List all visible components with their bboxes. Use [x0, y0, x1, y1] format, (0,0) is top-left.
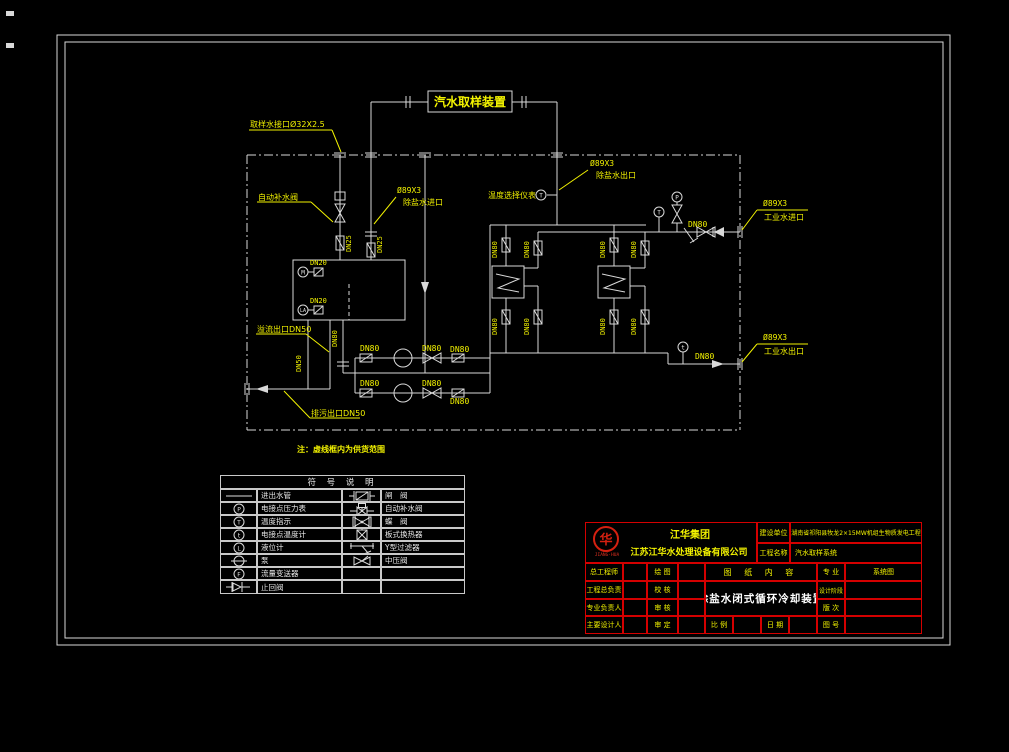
level-gauge-icon: L — [220, 541, 257, 554]
pump-icon — [392, 349, 414, 367]
cell-empty — [789, 616, 817, 634]
drawing-title: 除盐水闭式循环冷却装置 — [705, 581, 817, 616]
cell-empty — [678, 581, 705, 599]
legend-label: 闸 阀 — [381, 489, 465, 502]
pipe-size: DN80 — [450, 397, 469, 406]
demin-outlet-label: 除盐水出口 — [596, 170, 636, 180]
legend-label: 板式换热器 — [381, 528, 465, 541]
demin-inlet-pipe — [421, 155, 429, 373]
logo-text: JIANG·HUA — [590, 553, 624, 558]
makeup-tank: DN25 DN25 M DN20 LA DN20 — [293, 155, 405, 320]
pipe-size: DN80 — [331, 330, 339, 347]
temp-indicator-icon: T — [220, 515, 257, 528]
cell-empty — [845, 616, 922, 634]
instrument-letter: t — [681, 345, 685, 352]
project-leader-label: 工程总负责 — [585, 581, 623, 599]
plate-heat-exchanger-2: DN80 DN80 DN80 DN80 — [598, 225, 649, 353]
circulating-pumps: DN80 DN80 DN80 DN80 DN80 DN80 DN80 — [331, 320, 490, 406]
pipe-size: DN20 — [310, 259, 327, 267]
legend-label: 中压阀 — [381, 554, 465, 567]
cell-empty — [845, 599, 922, 616]
cell-empty — [623, 616, 647, 634]
legend-empty — [381, 580, 465, 594]
content-label: 图 纸 内 容 — [705, 563, 817, 581]
drawing-no-label: 图 号 — [817, 616, 845, 634]
check-valve-icon — [220, 580, 257, 594]
pump-icon — [220, 554, 257, 567]
legend-empty — [342, 567, 381, 580]
legend-title: 符 号 说 明 — [220, 475, 465, 489]
demin-inlet-size: Ø89X3 — [397, 185, 421, 195]
industrial-outlet-label: 工业水出口 — [764, 346, 804, 356]
company-group: 江华集团 — [624, 526, 756, 541]
sample-inlet-label: 取样水接口Ø32X2.5 — [250, 119, 325, 129]
svg-text:F: F — [237, 571, 241, 578]
legend-label: 进出水管 — [257, 489, 342, 502]
cell-empty — [623, 563, 647, 581]
plot-mark — [6, 43, 14, 48]
pump-icon — [392, 384, 414, 402]
legend-label: Y型过滤器 — [381, 541, 465, 554]
company-name: 江苏江华水处理设备有限公司 — [620, 545, 757, 559]
blowdown-outlet-label: 排污出口DN50 — [311, 408, 365, 418]
pipe-size: DN80 — [422, 344, 441, 353]
sampling-device-label: 汽水取样装置 — [434, 94, 506, 109]
cell-empty — [678, 599, 705, 616]
instrument-letter: M — [301, 270, 305, 277]
date-label: 日 期 — [761, 616, 789, 634]
pipe-size: DN80 — [630, 318, 638, 335]
piping-diagram: 汽水取样装置 DN25 DN25 M DN20 L — [0, 0, 1009, 752]
sampling-device: 汽水取样装置 — [371, 91, 557, 155]
legend-label: 温度指示 — [257, 515, 342, 528]
pipe-size: DN80 — [599, 318, 607, 335]
svg-text:华: 华 — [599, 532, 612, 548]
pipe-size: DN80 — [450, 345, 469, 354]
legend-label: 自动补水阀 — [381, 502, 465, 515]
project-name-label: 工程名称 — [757, 543, 790, 563]
legend-label: 电接点压力表 — [257, 502, 342, 515]
construction-unit-value: 湖南省祁阳县牧龙2×15MW机组生物质发电工程 — [790, 522, 922, 543]
company-cell: 华 JIANG·HUA 江华集团 江苏江华水处理设备有限公司 — [585, 522, 757, 563]
cell-empty — [678, 616, 705, 634]
pressure-gauge-icon: P — [220, 502, 257, 515]
cad-canvas: 汽水取样装置 DN25 DN25 M DN20 L — [0, 0, 1009, 752]
demin-outlet-size: Ø89X3 — [590, 158, 614, 168]
pipe-size: DN80 — [523, 318, 531, 335]
pipe-size: DN50 — [295, 355, 303, 372]
mid-pressure-valve-icon — [342, 554, 381, 567]
construction-unit-label: 建设单位 — [757, 522, 790, 543]
pipe-size: DN80 — [491, 318, 499, 335]
legend-table: 符 号 说 明 进出水管 闸 阀 P 电接点压力表 自动补水阀 T 温度指示 蝶… — [220, 475, 465, 594]
instrument-letter: P — [675, 195, 679, 202]
instrument-letter: T — [539, 193, 543, 200]
motor-valve-icon — [342, 502, 381, 515]
reviewed-label: 审 核 — [647, 599, 678, 616]
flow-arrow-right — [712, 360, 724, 368]
discipline-leader-label: 专业负责人 — [585, 599, 623, 616]
svg-text:L: L — [237, 545, 241, 552]
temp-selector-label: 温度选择仪表 — [488, 190, 536, 200]
company-logo: 华 — [590, 525, 624, 553]
industrial-outlet-size: Ø89X3 — [763, 332, 787, 342]
svg-text:P: P — [237, 506, 241, 513]
demin-inlet-label: 除盐水进口 — [403, 197, 443, 207]
legend-label: 蝶 阀 — [381, 515, 465, 528]
pipe-size: DN80 — [523, 241, 531, 258]
version-label: 版 次 — [817, 599, 845, 616]
cell-empty — [678, 563, 705, 581]
y-strainer-icon — [342, 541, 381, 554]
instrument-letter: LA — [300, 308, 306, 314]
pipe-size: DN80 — [422, 379, 441, 388]
legend-empty — [381, 567, 465, 580]
contact-thermometer-icon: t — [220, 528, 257, 541]
cell-empty — [623, 581, 647, 599]
approved-label: 审 定 — [647, 616, 678, 634]
industrial-inlet-label: 工业水进口 — [764, 212, 804, 222]
discipline-label: 专 业 — [817, 563, 845, 581]
legend-label: 止回阀 — [257, 580, 342, 594]
design-stage-label: 设计阶段 — [817, 581, 845, 599]
industrial-inlet-size: Ø89X3 — [763, 198, 787, 208]
pipe-size: DN20 — [310, 297, 327, 305]
pipe-size: DN25 — [376, 236, 384, 253]
scope-note: 注：虚线框内为供货范围 — [297, 444, 385, 454]
flow-arrow-down — [421, 282, 429, 294]
project-name-value: 汽水取样系统 — [790, 543, 922, 563]
butterfly-valve-icon — [342, 515, 381, 528]
pipe-size: DN80 — [599, 241, 607, 258]
legend-empty — [342, 580, 381, 594]
demin-outlet-pipe: T — [536, 155, 557, 225]
pipe-size: DN80 — [491, 241, 499, 258]
title-block: 华 JIANG·HUA 江华集团 江苏江华水处理设备有限公司 建设单位 湖南省祁… — [585, 522, 922, 634]
pipe-size: DN80 — [695, 352, 714, 361]
checked-label: 校 核 — [647, 581, 678, 599]
pipe-size: DN25 — [345, 235, 353, 252]
pipe-size: DN80 — [360, 379, 379, 388]
scale-label: 比 例 — [705, 616, 733, 634]
pipe-size: DN80 — [630, 241, 638, 258]
flow-arrow-left — [256, 385, 268, 393]
pipe-line-icon — [220, 489, 257, 502]
overflow-outlet-label: 溢流出口DN50 — [257, 324, 311, 334]
legend-label: 流量变送器 — [257, 567, 342, 580]
cell-empty — [845, 581, 922, 599]
pipe-size: DN80 — [360, 344, 379, 353]
legend-label: 泵 — [257, 554, 342, 567]
main-designer-label: 主要设计人 — [585, 616, 623, 634]
plate-heat-exchanger-1: DN80 DN80 DN80 DN80 — [491, 225, 542, 353]
chief-engineer-label: 总工程师 — [585, 563, 623, 581]
drawn-label: 绘 图 — [647, 563, 678, 581]
legend-label: 液位计 — [257, 541, 342, 554]
svg-text:t: t — [237, 532, 240, 539]
plot-mark — [6, 11, 14, 16]
cell-empty — [623, 599, 647, 616]
y-strainer-icon — [684, 228, 694, 242]
gate-valve-icon — [342, 489, 381, 502]
flow-transmitter-icon: F — [220, 567, 257, 580]
industrial-inlet-fittings: T P DN80 — [654, 192, 724, 243]
svg-text:T: T — [236, 519, 241, 526]
cell-empty — [733, 616, 761, 634]
auto-makeup-valve-label: 自动补水阀 — [258, 192, 298, 202]
instrument-letter: T — [657, 210, 661, 217]
discipline-value: 系统图 — [845, 563, 922, 581]
legend-label: 电接点温度计 — [257, 528, 342, 541]
plate-hx-icon — [342, 528, 381, 541]
